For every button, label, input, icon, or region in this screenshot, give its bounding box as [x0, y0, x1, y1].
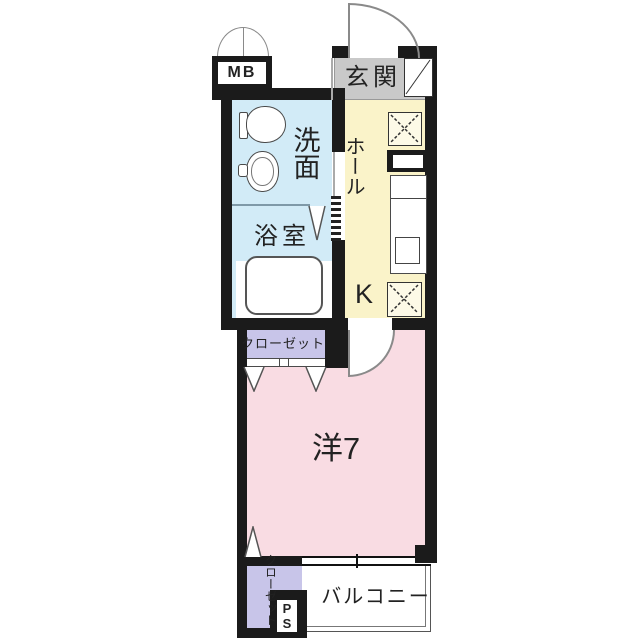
- washroom-door-leaf: [333, 152, 335, 196]
- closet-lower-label: クローゼット: [250, 567, 290, 613]
- window-mullion-tick: [356, 554, 358, 568]
- kitchen-counter: [390, 175, 427, 274]
- wall-left-upper: [221, 95, 232, 330]
- bathtub-icon: [245, 256, 323, 315]
- entrance-left-edge-line: [331, 58, 333, 100]
- washroom-bathroom-divider-line: [232, 204, 310, 206]
- meter-box-door-left-icon: [217, 27, 243, 57]
- washer-pan-lower-icon: [387, 282, 422, 317]
- kitchen-niche-inset: [393, 155, 423, 168]
- wall-right-bottom-corner: [415, 545, 437, 563]
- closet-upper-door-notch: [279, 358, 289, 367]
- sink-tap-icon: [238, 164, 248, 177]
- meter-box-door-right-icon: [243, 27, 269, 57]
- meter-box: MB: [212, 56, 272, 90]
- kitchen-label: K: [348, 278, 380, 310]
- wall-entrance-left-nub: [332, 46, 348, 58]
- bathroom-label: 浴室: [247, 221, 317, 253]
- closet-upper-label: クローゼット: [239, 333, 327, 353]
- closet-folding-door-icon: [243, 366, 265, 392]
- balcony-label: バルコニー: [326, 585, 426, 609]
- closet-folding-door-icon: [305, 366, 327, 392]
- toilet-icon: [246, 106, 286, 143]
- sink-bowl-icon: [251, 157, 274, 186]
- counter-sink-icon: [395, 237, 420, 264]
- wall-right: [425, 50, 437, 563]
- western-room-label: 洋7: [298, 429, 374, 467]
- shoe-cabinet-icon: [404, 58, 433, 97]
- window: [302, 556, 431, 566]
- washroom-label: 洗面: [287, 112, 321, 194]
- entry-door-swing-icon: [348, 3, 420, 58]
- counter-divider-line: [391, 198, 426, 199]
- entrance-label: 玄関: [338, 62, 408, 94]
- floor-plan: PS MB: [0, 0, 640, 640]
- hall-label: ホール: [337, 124, 369, 208]
- washer-pan-upper-icon: [388, 112, 422, 146]
- wall-divider-lower: [332, 240, 345, 330]
